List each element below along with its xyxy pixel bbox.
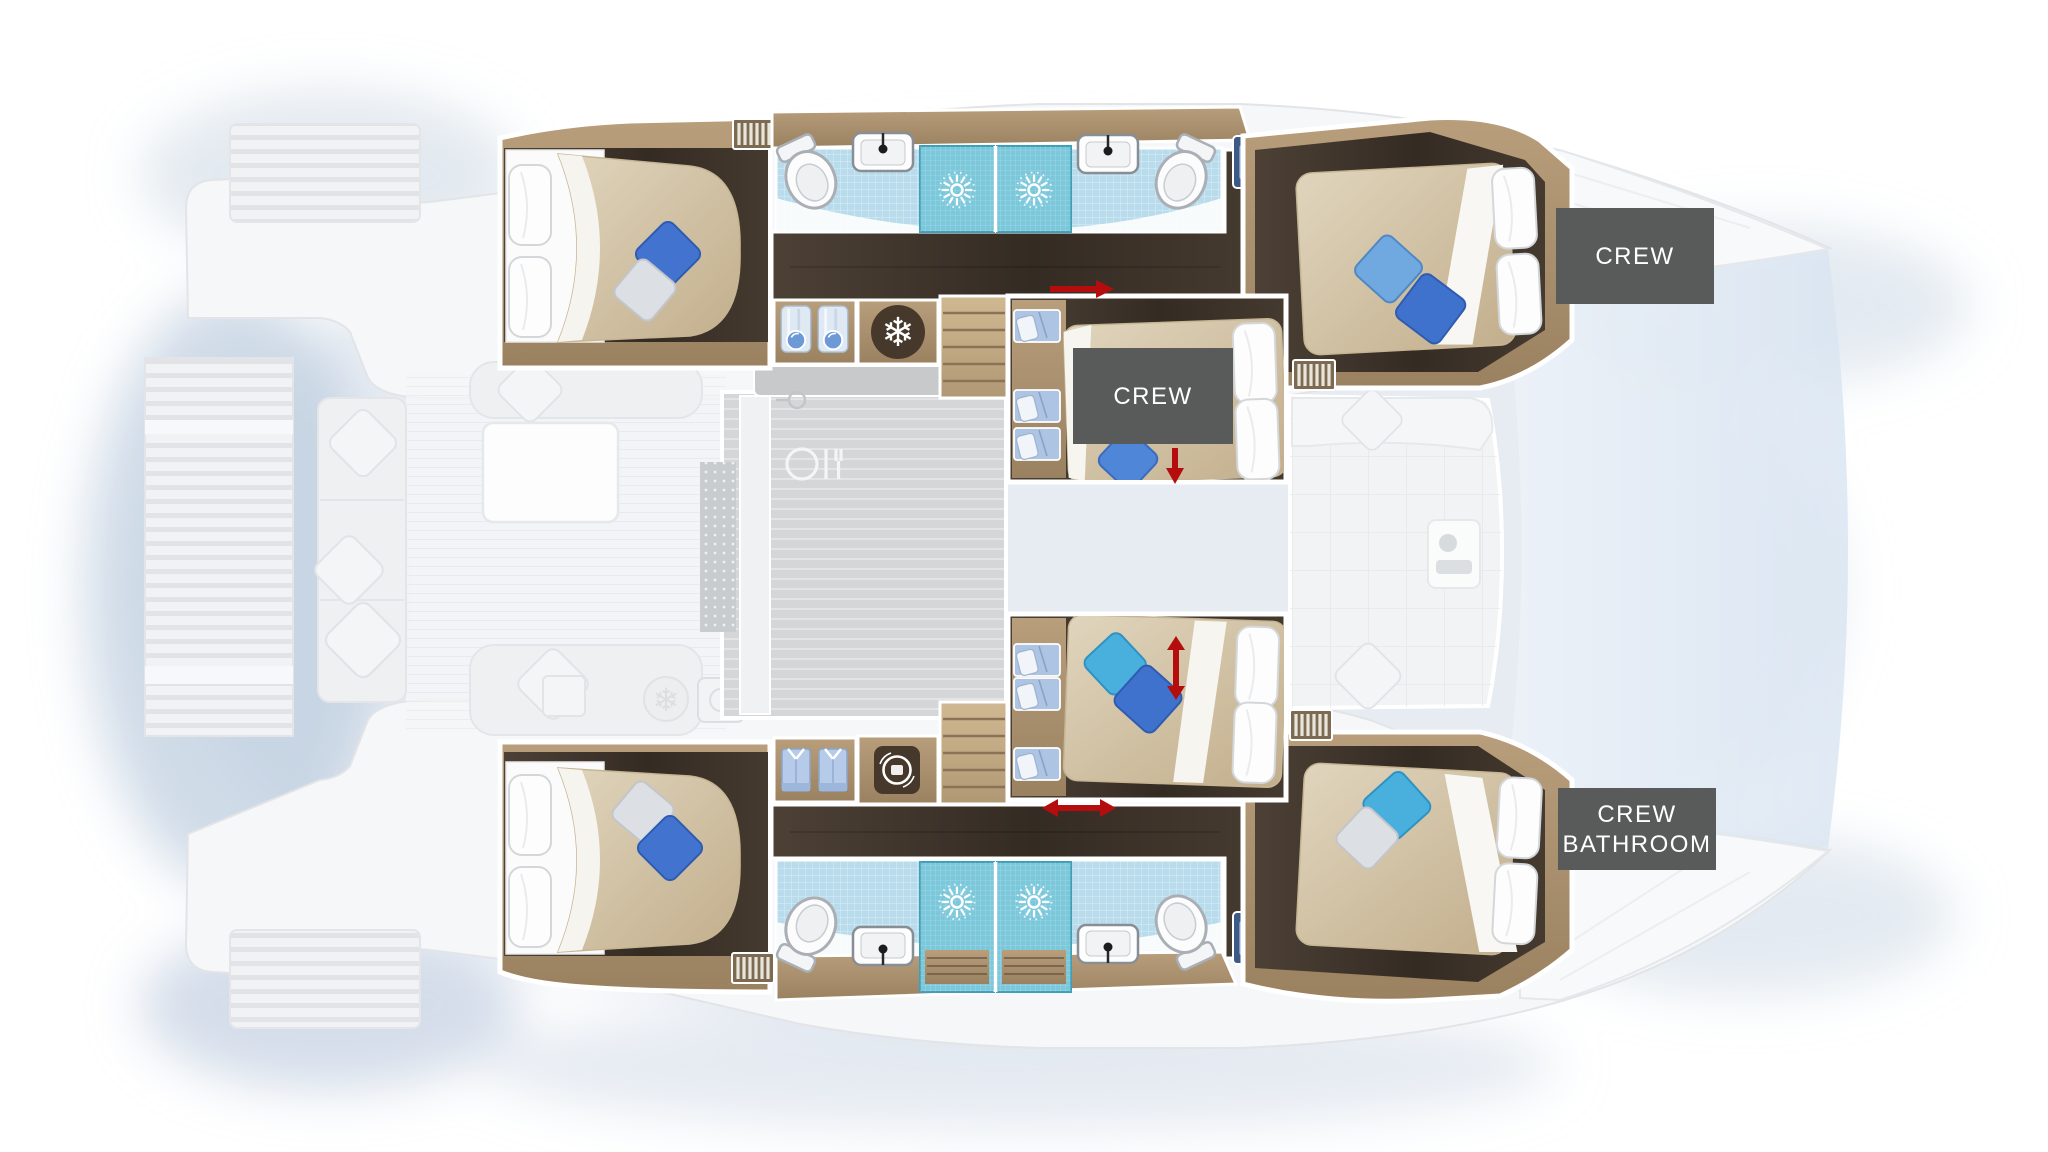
bed-pillow-white bbox=[1496, 253, 1542, 335]
bed-pillow-white bbox=[1492, 863, 1538, 945]
bed bbox=[1295, 763, 1542, 957]
bunk-bed-icon bbox=[1014, 748, 1060, 780]
bed-pillow-white bbox=[1235, 398, 1280, 479]
bed-pillow-white bbox=[1232, 702, 1277, 783]
washbasin-icon bbox=[853, 927, 913, 965]
crew-label-forward: CREW bbox=[1556, 208, 1714, 304]
saloon-faded bbox=[700, 366, 1006, 718]
wardrobe-shirt-icon bbox=[819, 749, 847, 791]
shower-stall bbox=[920, 862, 994, 992]
bathroom-port bbox=[771, 107, 1269, 232]
crew-bathroom-label: CREW BATHROOM bbox=[1558, 788, 1716, 870]
bed-pillow-white bbox=[1491, 167, 1537, 249]
outdoor-galley-stove bbox=[543, 676, 585, 716]
shower-stall bbox=[997, 146, 1071, 232]
bed-pillow-white bbox=[1232, 322, 1277, 403]
crew-label-mid: CREW bbox=[1073, 348, 1233, 444]
crew-bathroom-label-line2: BATHROOM bbox=[1563, 831, 1712, 858]
washbasin-icon bbox=[1078, 135, 1138, 173]
fridge-snowflake-icon: ❄ bbox=[881, 311, 915, 355]
cockpit-faded: ❄ bbox=[311, 355, 744, 735]
stern-platform-port bbox=[230, 124, 420, 222]
aft-platform-grid bbox=[145, 358, 293, 736]
shower-stall bbox=[920, 146, 994, 232]
companionway-grille-icon bbox=[732, 953, 774, 983]
galley-counter bbox=[740, 396, 770, 714]
washbasin-icon bbox=[853, 133, 913, 171]
deck-plan-svg: ❄ bbox=[0, 0, 2048, 1152]
cockpit-table bbox=[483, 423, 618, 522]
cabin-starboard-fwd bbox=[1243, 710, 1572, 1001]
bathroom-starboard bbox=[771, 860, 1269, 1000]
cabin-port-fwd bbox=[1243, 117, 1572, 390]
crew-label-text: CREW bbox=[1595, 243, 1674, 270]
bed-pillow-white bbox=[1496, 777, 1542, 859]
cabin-starboard-aft bbox=[500, 742, 774, 992]
crew-cabin-forward-starboard bbox=[1008, 614, 1287, 800]
double-washbasin-icon bbox=[818, 306, 847, 352]
bunk-bed-icon bbox=[1014, 644, 1060, 676]
crew-bathroom-label-line1: CREW bbox=[1597, 801, 1676, 828]
companionway-grille-icon bbox=[1293, 360, 1335, 390]
companionway-stairs bbox=[940, 296, 1008, 398]
bed-pillow-white bbox=[509, 165, 551, 245]
cabin-port-aft bbox=[500, 118, 775, 368]
bed-pillow-white bbox=[1235, 626, 1280, 707]
boat-floor-plan: ❄ bbox=[0, 0, 2048, 1152]
foredeck-faded bbox=[1290, 387, 1502, 712]
companionway-grille-icon bbox=[1290, 710, 1332, 740]
fridge-snowflake-icon-faded: ❄ bbox=[653, 682, 680, 718]
bed-pillow-white bbox=[509, 867, 551, 947]
stern-platform-starboard bbox=[230, 930, 420, 1028]
bed-pillow-white bbox=[509, 775, 551, 855]
companionway-stairs bbox=[940, 702, 1008, 804]
wardrobe-shirt-icon bbox=[782, 749, 810, 791]
washbasin-icon bbox=[1078, 925, 1138, 963]
shower-stall bbox=[997, 862, 1071, 992]
foredeck-console bbox=[1428, 520, 1480, 588]
bunk-bed-icon bbox=[1014, 678, 1060, 710]
companionway-grille-icon bbox=[733, 119, 775, 149]
bed bbox=[1295, 161, 1542, 355]
bunk-bed-icon bbox=[1014, 390, 1060, 422]
bunk-bed-icon bbox=[1014, 310, 1060, 342]
bunk-bed-icon bbox=[1014, 428, 1060, 460]
bed-pillow-white bbox=[509, 257, 551, 337]
washing-machine-icon bbox=[874, 746, 920, 794]
crew-label-text: CREW bbox=[1113, 383, 1192, 410]
double-washbasin-icon bbox=[781, 306, 810, 352]
